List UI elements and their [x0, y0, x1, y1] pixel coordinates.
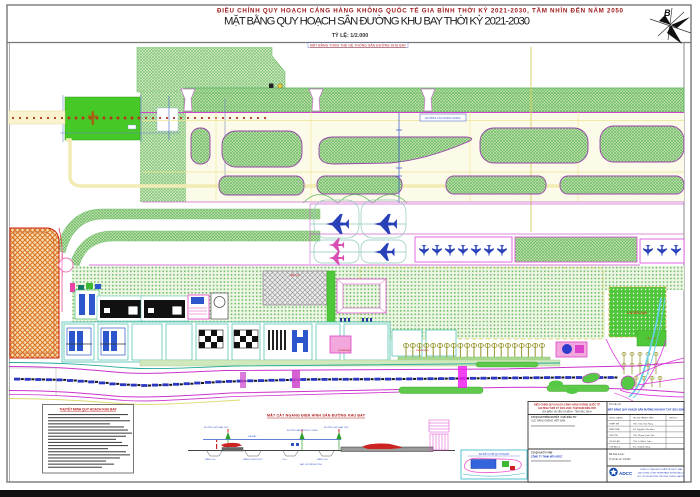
svg-text:CÔNG TY TNHH MTV ADCC: CÔNG TY TNHH MTV ADCC [531, 456, 563, 459]
svg-text:KS. Vũ Anh Dũng: KS. Vũ Anh Dũng [633, 446, 651, 449]
svg-text:Landscape: Landscape [416, 348, 429, 352]
svg-text:Landscape: Landscape [627, 310, 648, 315]
svg-text:TGĐ ADCC: TGĐ ADCC [609, 446, 621, 449]
svg-text:MẶT CẮT NGANG ĐIỂN HÌNH SÂN ĐƯ: MẶT CẮT NGANG ĐIỂN HÌNH SÂN ĐƯỜNG KHU BA… [267, 413, 366, 418]
svg-text:CƠ QUAN TƯ VẤN: CƠ QUAN TƯ VẤN [531, 452, 553, 455]
svg-text:ĐƯỜNG GIỚI HẠN CNV: ĐƯỜNG GIỚI HẠN CNV [324, 426, 349, 429]
svg-text:TỶ LỆ: 1/2.000: TỶ LỆ: 1/2.000 [332, 31, 369, 39]
svg-text:CN ĐỒ ÁN: CN ĐỒ ÁN [609, 440, 620, 443]
svg-text:XÂY DỰNG CÔNG TRÌNH HÀNG KHÔNG: XÂY DỰNG CÔNG TRÌNH HÀNG KHÔNG ADCC [638, 472, 684, 475]
svg-text:ThS. Phạm Quốc Việt: ThS. Phạm Quốc Việt [633, 434, 655, 437]
svg-text:MẶT CẮT NỀN ĐƯỜNG: MẶT CẮT NỀN ĐƯỜNG [300, 463, 322, 466]
svg-text:Lối vào: Lối vào [646, 336, 655, 340]
svg-text:2.5m: 2.5m [282, 459, 287, 461]
svg-text:KIỂM TRA: KIỂM TRA [609, 428, 620, 431]
svg-text:ĐỊA ĐIỂM: HUYỆN GIA BÌNH - TỈN: ĐỊA ĐIỂM: HUYỆN GIA BÌNH - TỈNH BẮC NINH [543, 411, 592, 414]
svg-text:ĐIỀU CHỈNH QUY HOẠCH CẢNG HÀNG: ĐIỀU CHỈNH QUY HOẠCH CẢNG HÀNG KHÔNG QUỐ… [217, 7, 624, 15]
svg-text:CÔNG TY TNHH MTV THIẾT KẾ VÀ T: CÔNG TY TNHH MTV THIẾT KẾ VÀ TƯ VẤN [640, 468, 683, 471]
svg-text:ADCC: ADCC [619, 471, 633, 476]
svg-text:ĐƯỜNG LĂN SONG SONG: ĐƯỜNG LĂN SONG SONG [425, 115, 460, 120]
svg-text:MẶT BẰNG QUY HOẠCH SÂN ĐƯỜNG K: MẶT BẰNG QUY HOẠCH SÂN ĐƯỜNG KHU BAY THỜ… [224, 15, 530, 28]
svg-text:RÃNH 2.5m: RÃNH 2.5m [205, 458, 216, 461]
svg-text:SƠ ĐỒ VỊ TRÍ QUY HOẠCH: SƠ ĐỒ VỊ TRÍ QUY HOẠCH [479, 453, 510, 456]
svg-text:Tên bản vẽ:: Tên bản vẽ: [609, 403, 621, 406]
svg-text:DẢI BAY: DẢI BAY [248, 435, 257, 438]
svg-text:HỌ VÀ TÊN/KÝ TÊN: HỌ VÀ TÊN/KÝ TÊN [633, 417, 654, 420]
svg-text:GIA BÌNH THỜI KỲ 2021-2030, TẦ: GIA BÌNH THỜI KỲ 2021-2030, TẦM NHÌN ĐẾN… [538, 407, 597, 410]
svg-text:Đ/C: SỐ 180 ĐƯỜNG TRƯỜNG CHINH: Đ/C: SỐ 180 ĐƯỜNG TRƯỜNG CHINH - HÀ NỘI [638, 475, 685, 478]
svg-text:THIẾT KẾ: THIẾT KẾ [609, 422, 619, 425]
svg-text:Tỷ lệ bản vẽ: 1/2.000: Tỷ lệ bản vẽ: 1/2.000 [609, 458, 631, 461]
svg-text:ĐƯỜNG SÂN ĐƯỜNG CHÍNH: ĐƯỜNG SÂN ĐƯỜNG CHÍNH [287, 429, 318, 432]
svg-text:đất QS: đất QS [290, 273, 299, 277]
svg-text:ThS. Lê Minh Tuấn: ThS. Lê Minh Tuấn [633, 440, 652, 443]
svg-text:CHỮ KÝ: CHỮ KÝ [669, 417, 678, 420]
svg-text:Mã hiệu dự án:: Mã hiệu dự án: [609, 453, 625, 456]
svg-text:CỤC HÀNG KHÔNG VIỆT NAM: CỤC HÀNG KHÔNG VIỆT NAM [531, 420, 565, 423]
svg-text:RÃNH 2.5m: RÃNH 2.5m [317, 458, 328, 461]
svg-text:ĐƯỜNG GIỚI HẠN CNV: ĐƯỜNG GIỚI HẠN CNV [204, 426, 229, 429]
svg-text:KS. Nguyễn Văn Nam: KS. Nguyễn Văn Nam [633, 428, 655, 431]
svg-text:MẶT BẰNG QUY HOẠCH SÂN ĐƯỜNG K: MẶT BẰNG QUY HOẠCH SÂN ĐƯỜNG KHU BAY T.K… [608, 409, 685, 412]
svg-text:RÃNH THOÁT NƯỚC: RÃNH THOÁT NƯỚC [243, 458, 263, 461]
svg-text:ThS. Trần Văn Hùng: ThS. Trần Văn Hùng [633, 422, 654, 425]
svg-text:MẶT BẰNG TỔNG THỂ HỆ THỐNG SÂN: MẶT BẰNG TỔNG THỂ HỆ THỐNG SÂN ĐƯỜNG KHU… [310, 43, 407, 48]
svg-text:CHỨC DANH: CHỨC DANH [609, 417, 623, 420]
svg-text:THUYẾT MINH QUY HOẠCH KHU BAY: THUYẾT MINH QUY HOẠCH KHU BAY [59, 407, 117, 412]
svg-text:CHỦ TRÌ: CHỦ TRÌ [609, 434, 618, 437]
svg-text:Landscape: Landscape [338, 348, 351, 352]
